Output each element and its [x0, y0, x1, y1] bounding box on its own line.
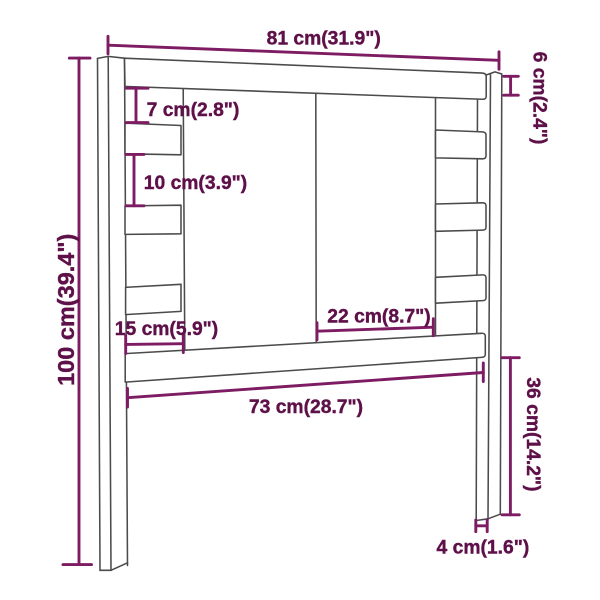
svg-text:15 cm(5.9"): 15 cm(5.9"): [115, 319, 218, 340]
svg-text:7 cm(2.8"): 7 cm(2.8"): [147, 100, 240, 121]
svg-text:10 cm(3.9"): 10 cm(3.9"): [144, 173, 247, 194]
svg-text:36 cm(14.2"): 36 cm(14.2"): [522, 377, 543, 491]
svg-text:100 cm(39.4"): 100 cm(39.4"): [53, 234, 79, 386]
svg-text:22 cm(8.7"): 22 cm(8.7"): [327, 306, 430, 327]
svg-text:6 cm(2.4"): 6 cm(2.4"): [528, 52, 549, 145]
svg-text:4 cm(1.6"): 4 cm(1.6"): [437, 538, 530, 559]
svg-text:81 cm(31.9"): 81 cm(31.9"): [267, 28, 381, 49]
svg-text:73 cm(28.7"): 73 cm(28.7"): [249, 397, 363, 418]
